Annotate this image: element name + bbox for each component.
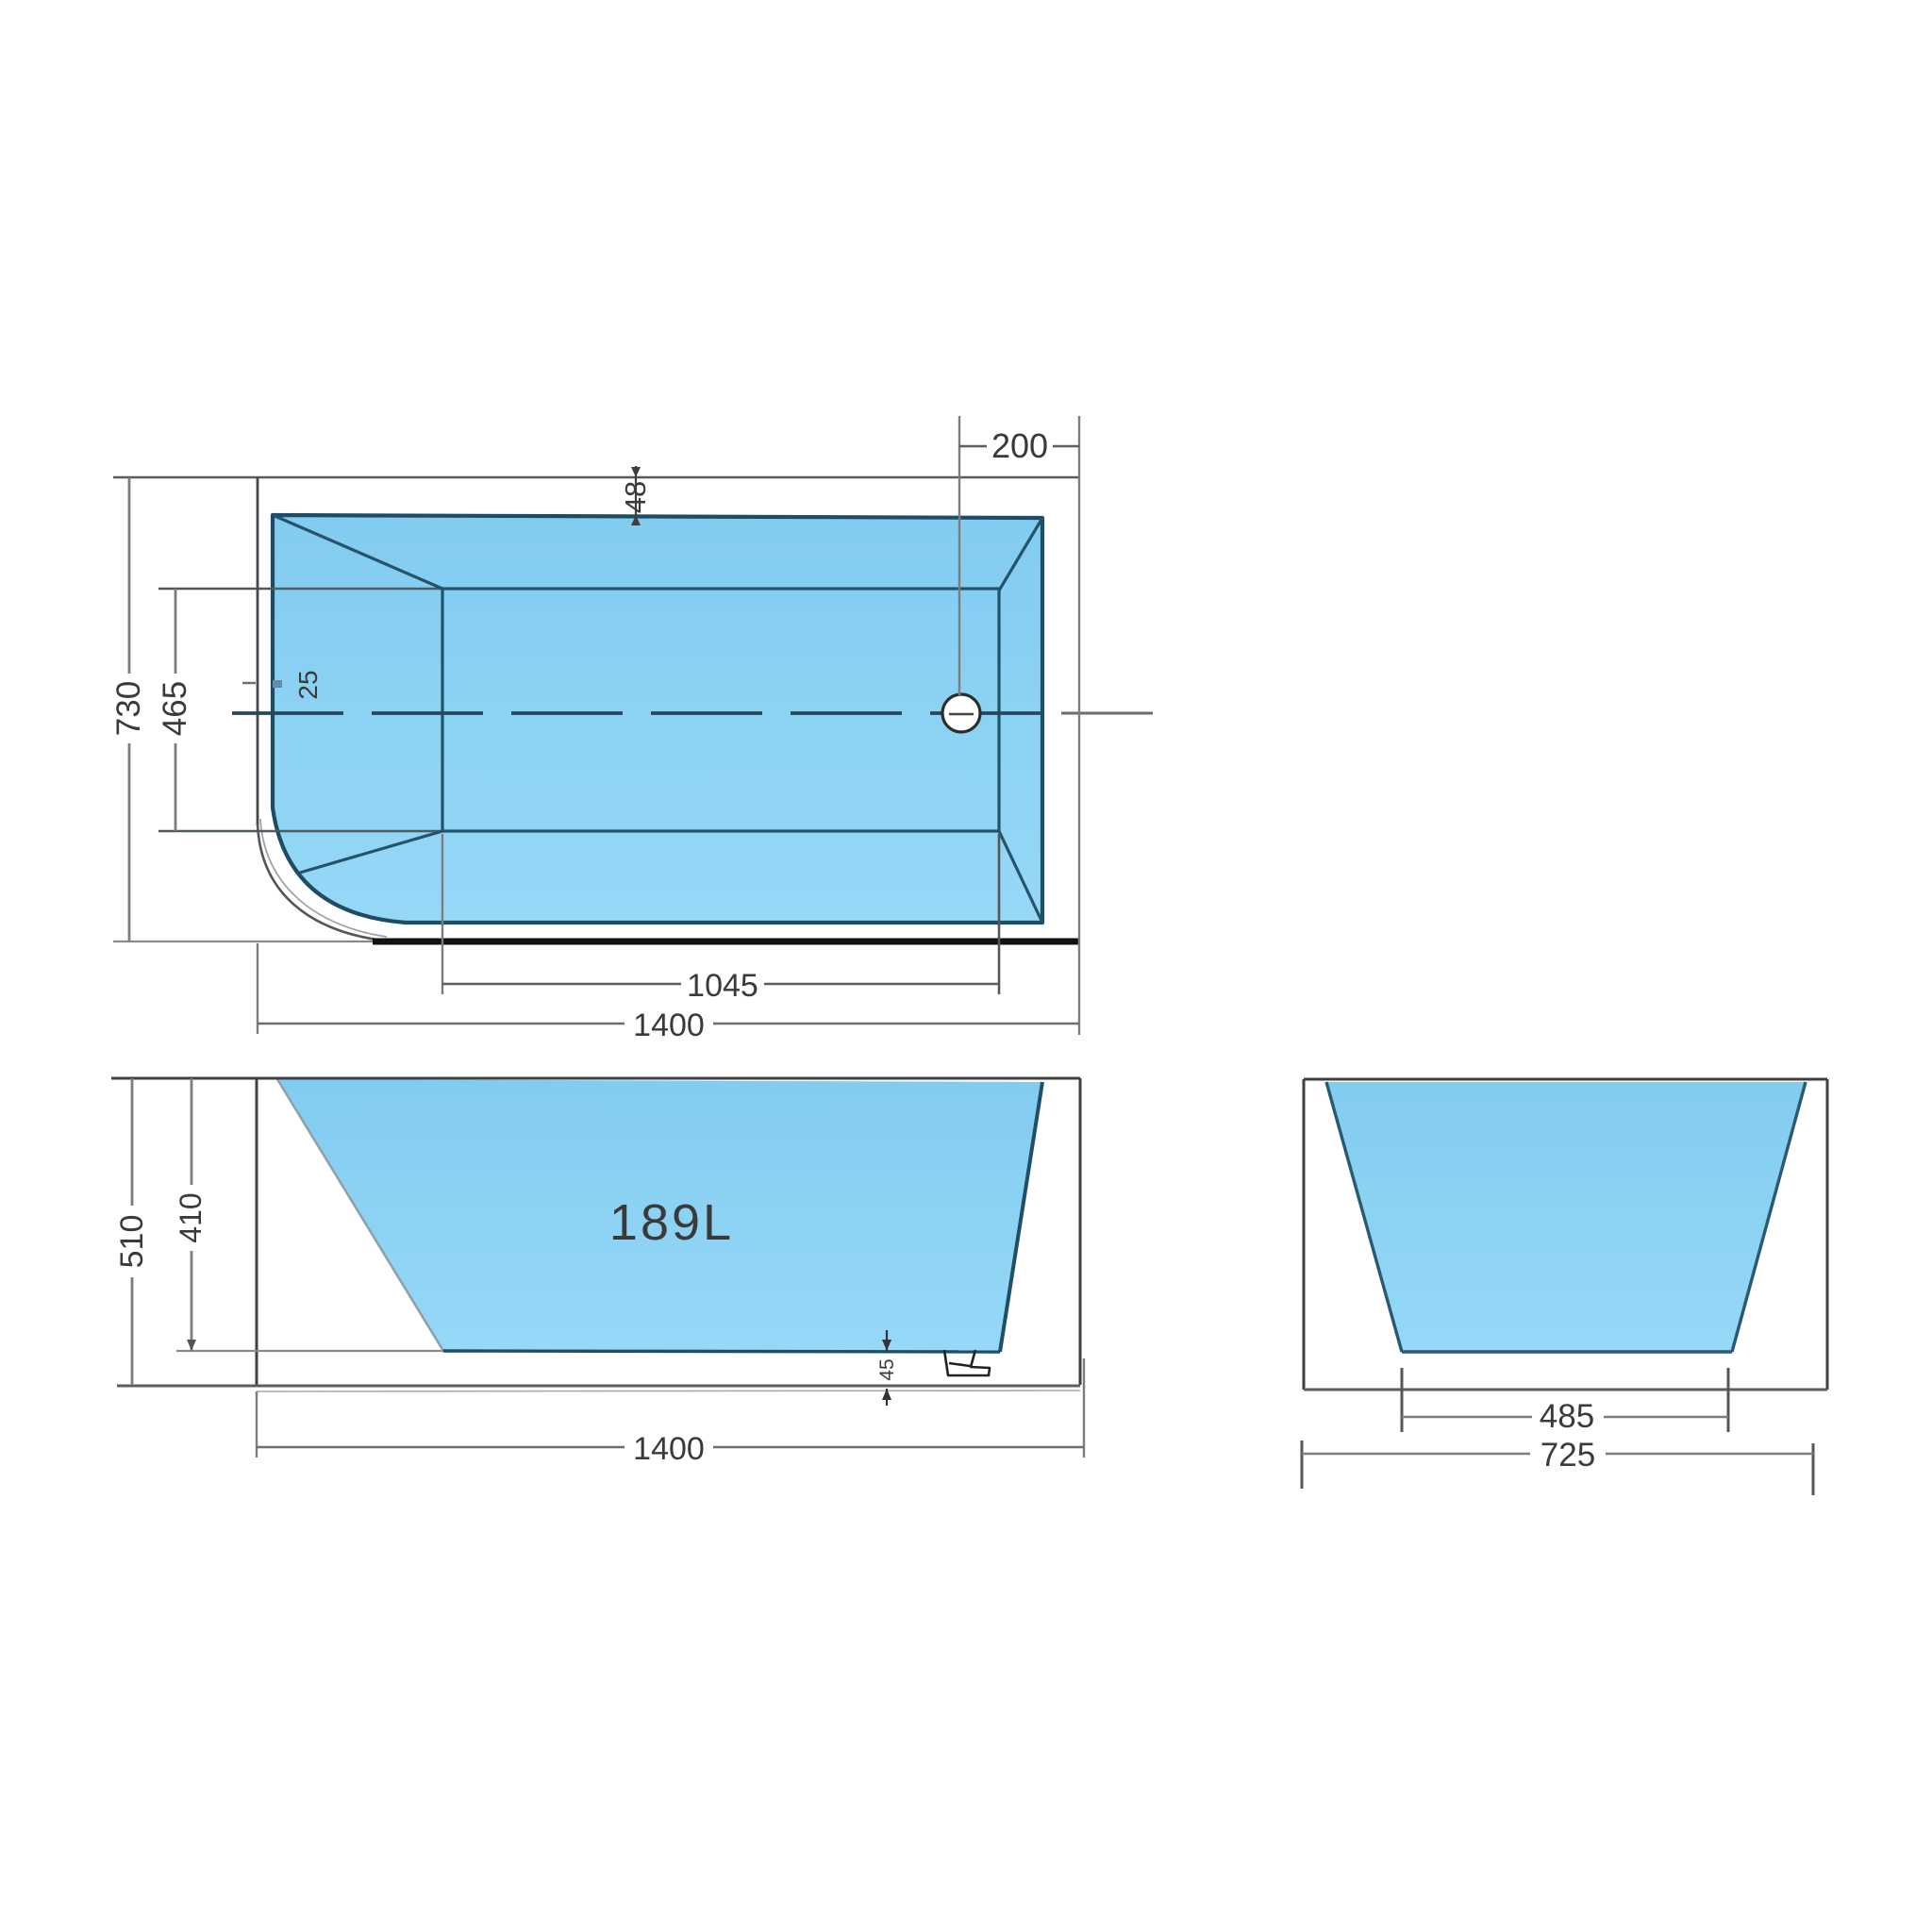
svg-text:48: 48: [619, 481, 652, 513]
svg-text:25: 25: [293, 670, 323, 699]
svg-text:189L: 189L: [609, 1194, 734, 1251]
svg-text:410: 410: [174, 1192, 208, 1242]
svg-text:45: 45: [876, 1358, 898, 1380]
svg-text:725: 725: [1541, 1437, 1595, 1474]
svg-text:510: 510: [114, 1215, 150, 1269]
svg-text:1045: 1045: [687, 968, 758, 1004]
svg-text:485: 485: [1540, 1398, 1594, 1435]
svg-text:465: 465: [157, 681, 193, 736]
svg-text:1400: 1400: [633, 1008, 705, 1043]
svg-text:200: 200: [991, 426, 1048, 465]
svg-text:1400: 1400: [633, 1431, 705, 1467]
svg-text:730: 730: [110, 681, 147, 736]
